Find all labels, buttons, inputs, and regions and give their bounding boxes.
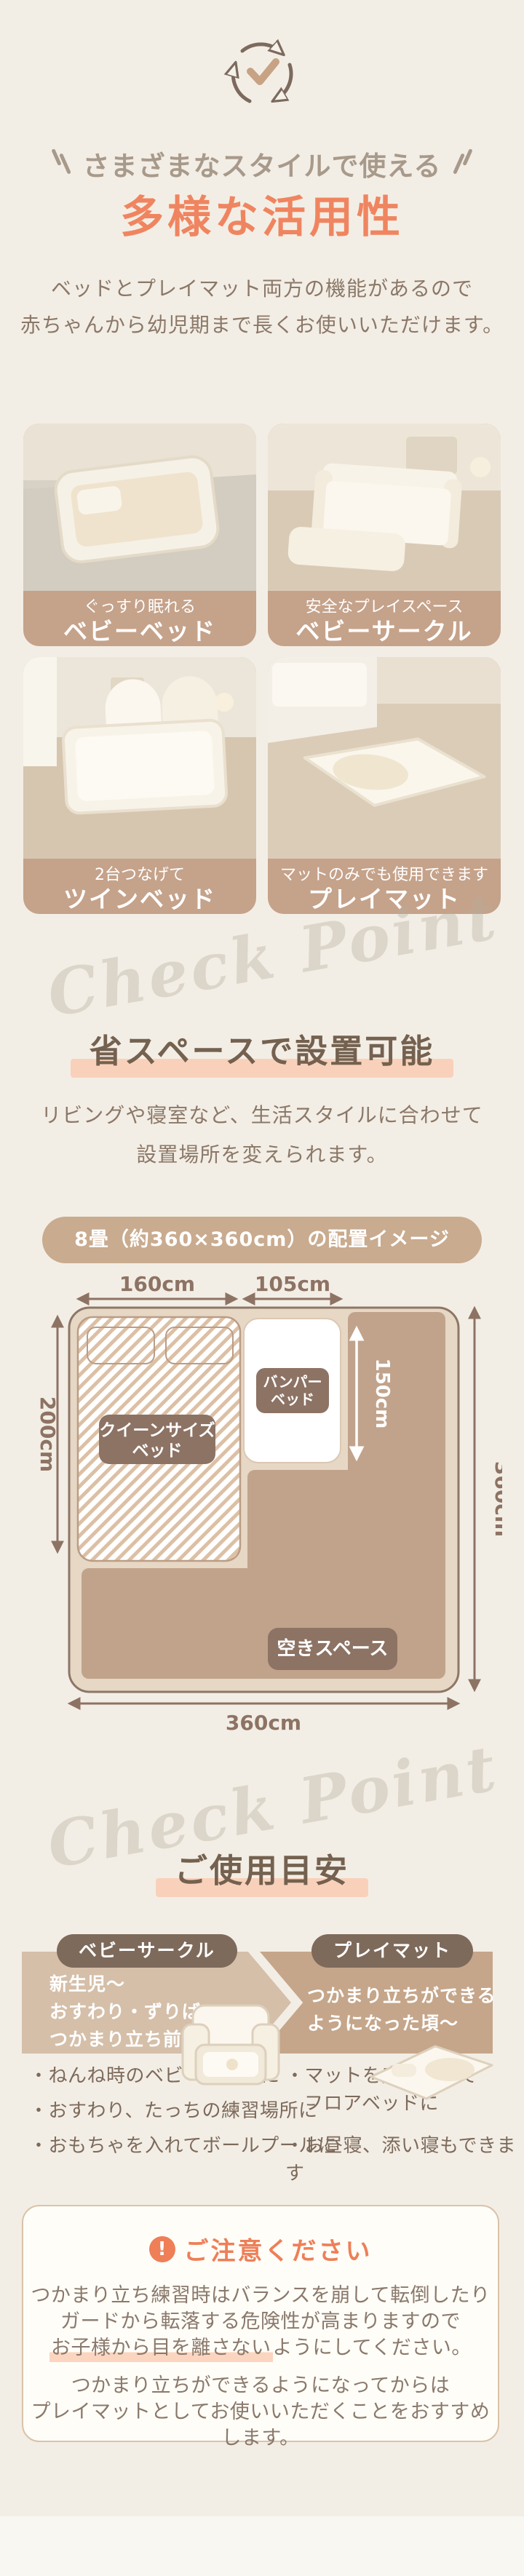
layout-description-line2: 設置場所を変えられます。 [0,1135,524,1174]
bullet-item: ・お昼寝、添い寝もできます [285,2132,524,2187]
intro-description-line1: ベッドとプレイマット両方の機能があるので [0,271,524,307]
intro-description: ベッドとプレイマット両方の機能があるので 赤ちゃんから幼児期まで長くお使いいただ… [0,271,524,343]
card-play-mat: マットのみでも使用できます プレイマット [268,657,501,914]
card-caption: 安全なプレイスペース ベビーサークル [268,591,501,646]
mat-product-illustration [362,2035,499,2104]
card-caption-title: ベビーサークル [268,617,501,646]
bumper-bed-label-line1: バンパー [263,1373,322,1391]
caution-title: ご注意ください [184,2231,373,2267]
intro-subheading: さまざまなスタイルで使える [83,144,442,183]
room-size-badge: 8畳（約360×360cm）の配置イメージ [42,1217,482,1263]
play-mat-photo [268,657,501,859]
layout-description-line1: リビングや寝室など、生活スタイルに合わせて [0,1096,524,1135]
card-caption: ぐっすり眠れる ベビーベッド [23,591,256,646]
baby-circle-stage-label: ベビーサークル [57,1934,237,1968]
play-mat-stage-label: プレイマット [311,1934,473,1968]
card-twin-bed: 2台つなげて ツインベッド [23,657,256,914]
dim-150cm-label: 150cm [371,1359,393,1429]
twin-bed-photo [23,657,256,859]
baby-circle-photo [268,424,501,591]
decorative-slashes-right [457,153,469,175]
empty-space-label: 空きスペース [277,1637,389,1660]
card-caption-sub: 2台つなげて [23,865,256,885]
layout-section-heading: 省スペースで設置可能 [0,1025,524,1072]
queen-pillow-left [87,1327,154,1364]
intro-heading-row: さまざまなスタイルで使える [0,144,524,183]
guide-section-heading: ご使用目安 [0,1844,524,1891]
layout-section-description: リビングや寝室など、生活スタイルに合わせて 設置場所を変えられます。 [0,1096,524,1174]
card-caption: 2台つなげて ツインベッド [23,859,256,914]
intro-description-line2: 赤ちゃんから幼児期まで長くお使いいただけます。 [0,307,524,343]
play-mat-period: つかまり立ちができる ようになった頃〜 [307,1982,496,2038]
exclamation-icon: ! [149,2236,175,2262]
decorative-slashes-left [55,153,67,175]
dim-200cm-label: 200cm [36,1396,60,1472]
reuse-check-icon [216,32,308,108]
card-caption-title: ベビーベッド [23,617,256,646]
caution-paragraph-2: つかまり立ちができるようになってからは プレイマットとしてお使いいただくことをお… [23,2373,498,2452]
queen-pillow-right [166,1327,233,1364]
card-baby-circle: 安全なプレイスペース ベビーサークル [268,424,501,646]
dim-360cm-right-label: 360cm [491,1461,502,1537]
crib-product-illustration [171,1997,293,2104]
caution-paragraph-1: つかまり立ち練習時はバランスを崩して転倒したり ガードから転落する危険性が高まり… [23,2283,498,2361]
queen-bed-label-line1: クイーンサイズ [99,1420,215,1440]
card-baby-bed: ぐっすり眠れる ベビーベッド [23,424,256,646]
card-caption-sub: 安全なプレイスペース [268,597,501,617]
caution-box: ! ご注意ください つかまり立ち練習時はバランスを崩して転倒したり ガードから転… [22,2205,499,2442]
bumper-bed-label-line2: ベッド [271,1391,314,1408]
dim-160cm-label: 160cm [119,1272,195,1296]
dim-360cm-bottom-label: 360cm [226,1711,301,1735]
card-caption-sub: マットのみでも使用できます [268,865,501,885]
product-detail-page: さまざまなスタイルで使える 多様な活用性 ベッドとプレイマット両方の機能があるの… [0,0,524,2576]
bottom-spacer [0,2516,524,2576]
queen-bed-label-line2: ベッド [132,1442,183,1460]
dim-105cm-label: 105cm [255,1272,330,1296]
card-caption-sub: ぐっすり眠れる [23,597,256,617]
card-caption-title: ツインベッド [23,885,256,914]
caution-highlighted-text: お子様から目を離さない [49,2337,273,2362]
page-title: 多様な活用性 [0,182,524,245]
baby-bed-photo [23,424,256,591]
caution-title-row: ! ご注意ください [23,2231,498,2267]
room-size-badge-wrap: 8畳（約360×360cm）の配置イメージ [0,1217,524,1263]
room-floorplan-diagram: 160cm 105cm クイーンサイズ ベッド バンパー ベッド 150cm 2… [22,1266,502,1739]
usage-style-cards: ぐっすり眠れる ベビーベッド [23,424,501,914]
